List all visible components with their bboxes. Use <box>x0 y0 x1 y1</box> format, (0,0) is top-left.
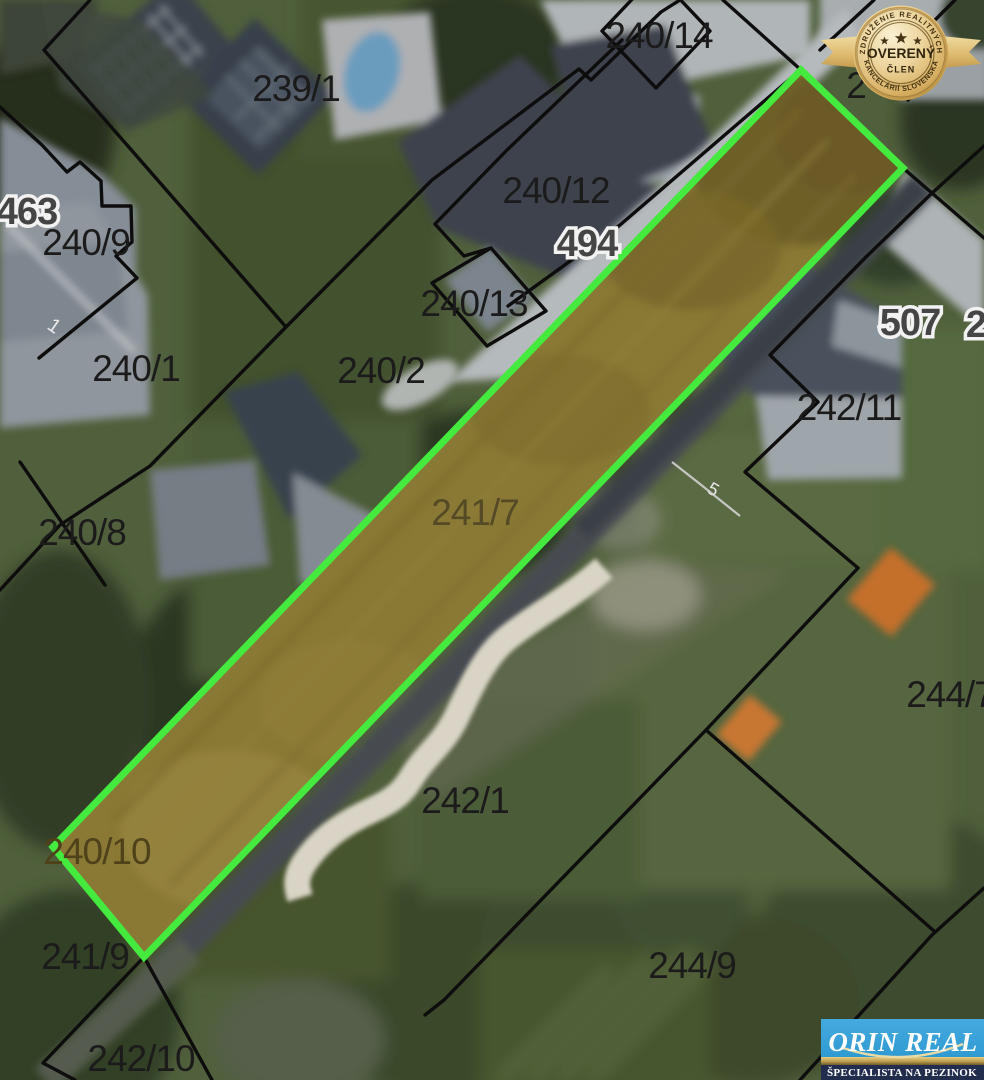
svg-text:ŠPECIALISTA NA PEZINOK: ŠPECIALISTA NA PEZINOK <box>827 1066 977 1079</box>
svg-text:507: 507 <box>880 302 940 344</box>
svg-text:240/13: 240/13 <box>420 283 527 324</box>
svg-text:241/9: 241/9 <box>41 936 129 977</box>
svg-text:239/1: 239/1 <box>252 68 340 109</box>
svg-text:241/7: 241/7 <box>431 492 519 533</box>
svg-text:2: 2 <box>966 304 984 346</box>
svg-text:240/2: 240/2 <box>337 350 425 391</box>
svg-text:240/8: 240/8 <box>38 512 126 553</box>
svg-text:242/11: 242/11 <box>797 387 901 428</box>
svg-text:240/10: 240/10 <box>43 831 151 872</box>
svg-text:244/9: 244/9 <box>648 945 736 986</box>
svg-text:494: 494 <box>557 223 618 265</box>
svg-text:240/12: 240/12 <box>502 170 609 211</box>
svg-text:244/7: 244/7 <box>906 674 984 715</box>
svg-text:240/1: 240/1 <box>92 348 180 389</box>
svg-text:463: 463 <box>0 191 57 233</box>
svg-text:OVERENÝ: OVERENÝ <box>867 44 936 61</box>
svg-text:242/10: 242/10 <box>87 1038 195 1079</box>
svg-text:ORIN REAL: ORIN REAL <box>828 1027 977 1057</box>
svg-text:242/1: 242/1 <box>421 780 509 821</box>
svg-text:240/14: 240/14 <box>605 15 713 56</box>
svg-text:ČLEN: ČLEN <box>887 64 916 75</box>
